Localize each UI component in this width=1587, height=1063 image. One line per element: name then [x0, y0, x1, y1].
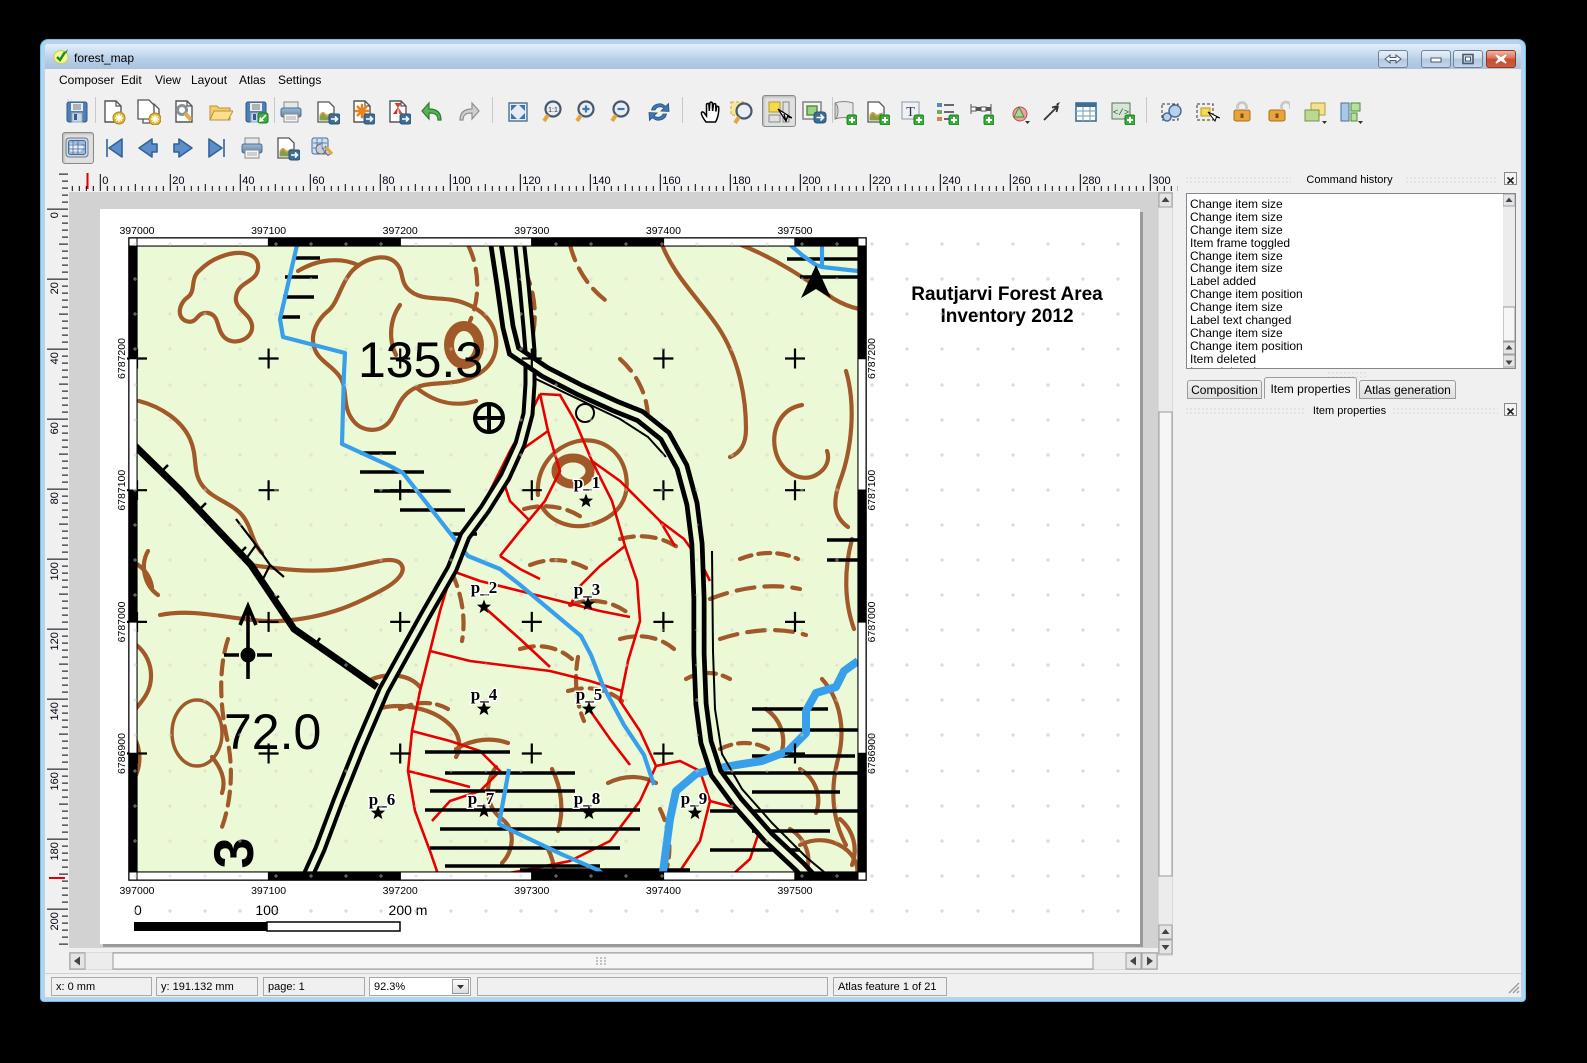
svg-text:200 m: 200 m [389, 902, 428, 918]
svg-text:120: 120 [522, 175, 540, 187]
svg-text:80: 80 [382, 175, 394, 187]
svg-text:p_2: p_2 [471, 578, 497, 597]
svg-text:40: 40 [49, 352, 61, 364]
svg-text:6787000: 6787000 [866, 601, 878, 642]
svg-text:397400: 397400 [646, 885, 681, 897]
svg-text:3: 3 [202, 837, 265, 868]
svg-text:Inventory 2012: Inventory 2012 [940, 306, 1073, 327]
svg-text:397500: 397500 [777, 225, 812, 237]
svg-text:180: 180 [732, 175, 750, 187]
svg-text:200: 200 [49, 912, 61, 930]
svg-text:1:1: 1:1 [548, 107, 558, 114]
svg-text:200: 200 [802, 175, 820, 187]
svg-text:60: 60 [49, 422, 61, 434]
svg-text:397300: 397300 [514, 225, 549, 237]
svg-text:6786900: 6786900 [866, 733, 878, 774]
svg-text:72.0: 72.0 [224, 704, 321, 760]
svg-text:300: 300 [1152, 175, 1170, 187]
svg-text:p_5: p_5 [576, 685, 602, 704]
svg-text:p_1: p_1 [574, 473, 600, 492]
svg-text:240: 240 [942, 175, 960, 187]
svg-text:397000: 397000 [119, 885, 154, 897]
svg-text:100: 100 [255, 902, 279, 918]
svg-text:0: 0 [49, 212, 61, 218]
svg-text:6787100: 6787100 [116, 470, 128, 511]
svg-text:6786900: 6786900 [116, 733, 128, 774]
svg-text:160: 160 [662, 175, 680, 187]
svg-text:20: 20 [49, 282, 61, 294]
svg-text:397300: 397300 [514, 885, 549, 897]
svg-text:120: 120 [49, 632, 61, 650]
svg-text:220: 220 [872, 175, 890, 187]
svg-text:180: 180 [49, 842, 61, 860]
svg-text:p_3: p_3 [574, 580, 600, 599]
svg-text:140: 140 [49, 702, 61, 720]
svg-text:Rautjarvi Forest Area: Rautjarvi Forest Area [911, 284, 1103, 305]
svg-text:100: 100 [49, 562, 61, 580]
svg-text:260: 260 [1012, 175, 1030, 187]
svg-text:397100: 397100 [251, 225, 286, 237]
svg-text:p_9: p_9 [681, 789, 707, 808]
svg-text:397100: 397100 [251, 885, 286, 897]
svg-text:p_4: p_4 [471, 685, 498, 704]
svg-text:p_8: p_8 [574, 789, 600, 808]
svg-text:160: 160 [49, 772, 61, 790]
svg-text:100: 100 [452, 175, 470, 187]
svg-text:280: 280 [1082, 175, 1100, 187]
svg-text:p_7: p_7 [468, 789, 495, 808]
svg-text:0: 0 [102, 175, 108, 187]
svg-text:6787200: 6787200 [116, 338, 128, 379]
svg-text:6787200: 6787200 [866, 338, 878, 379]
svg-text:397200: 397200 [383, 885, 418, 897]
svg-text:397200: 397200 [383, 225, 418, 237]
svg-text:6787000: 6787000 [116, 601, 128, 642]
svg-text:397400: 397400 [646, 225, 681, 237]
svg-text:397500: 397500 [777, 885, 812, 897]
svg-text:20: 20 [172, 175, 184, 187]
svg-text:140: 140 [592, 175, 610, 187]
svg-text:40: 40 [242, 175, 254, 187]
svg-text:397000: 397000 [119, 225, 154, 237]
svg-text:80: 80 [49, 492, 61, 504]
svg-text:60: 60 [312, 175, 324, 187]
svg-text:135.3: 135.3 [358, 332, 483, 388]
